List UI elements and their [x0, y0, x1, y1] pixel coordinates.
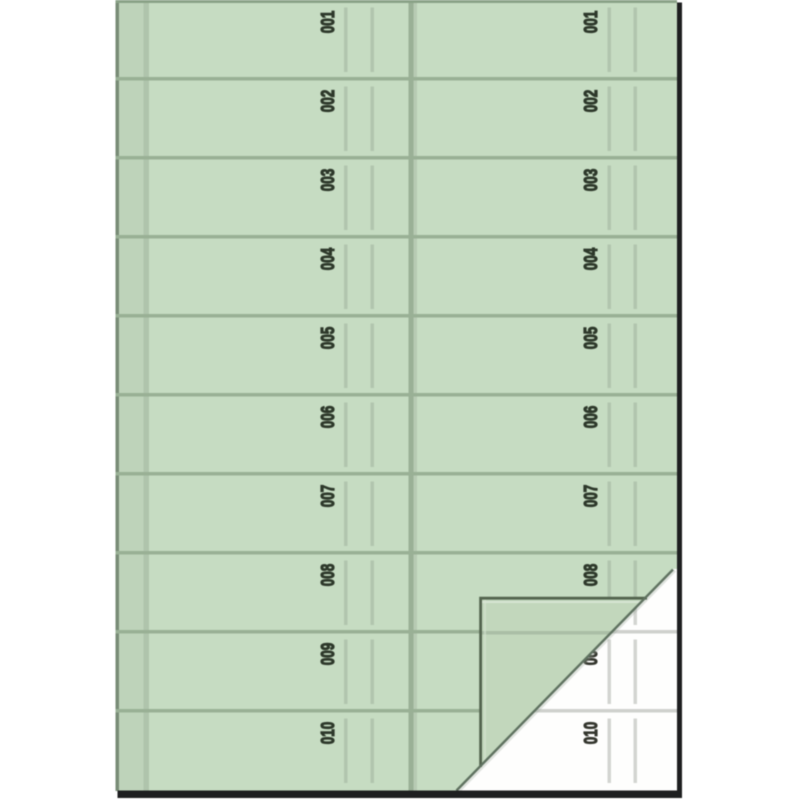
svg-text:008: 008: [581, 564, 602, 587]
svg-text:007: 007: [318, 485, 339, 508]
svg-text:005: 005: [318, 327, 339, 350]
svg-text:005: 005: [581, 327, 602, 350]
svg-text:001: 001: [318, 11, 339, 34]
svg-text:003: 003: [581, 169, 602, 192]
svg-text:010: 010: [318, 722, 339, 745]
svg-text:006: 006: [581, 406, 602, 429]
svg-text:001: 001: [581, 11, 602, 34]
svg-text:007: 007: [581, 485, 602, 508]
svg-text:008: 008: [318, 564, 339, 587]
svg-text:009: 009: [318, 643, 339, 666]
svg-text:002: 002: [581, 90, 602, 113]
svg-text:010: 010: [581, 722, 602, 745]
svg-text:002: 002: [318, 90, 339, 113]
svg-text:004: 004: [318, 248, 339, 271]
svg-text:006: 006: [318, 406, 339, 429]
svg-text:003: 003: [318, 169, 339, 192]
svg-text:004: 004: [581, 248, 602, 271]
